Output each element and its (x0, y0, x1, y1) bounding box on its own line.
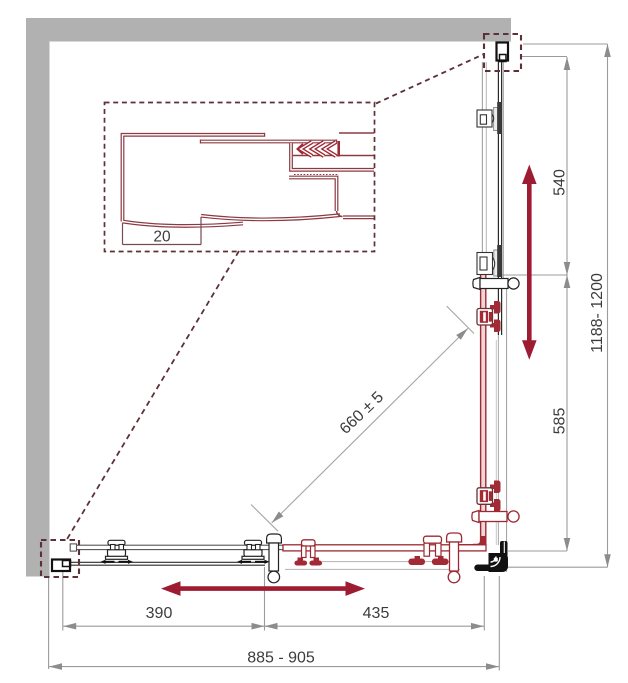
svg-text:20: 20 (153, 229, 171, 246)
svg-text:435: 435 (363, 605, 390, 622)
svg-text:390: 390 (146, 605, 173, 622)
svg-text:540: 540 (552, 169, 569, 196)
svg-text:1188- 1200: 1188- 1200 (589, 273, 606, 353)
svg-text:885 - 905: 885 - 905 (247, 650, 315, 667)
svg-text:585: 585 (552, 408, 569, 435)
